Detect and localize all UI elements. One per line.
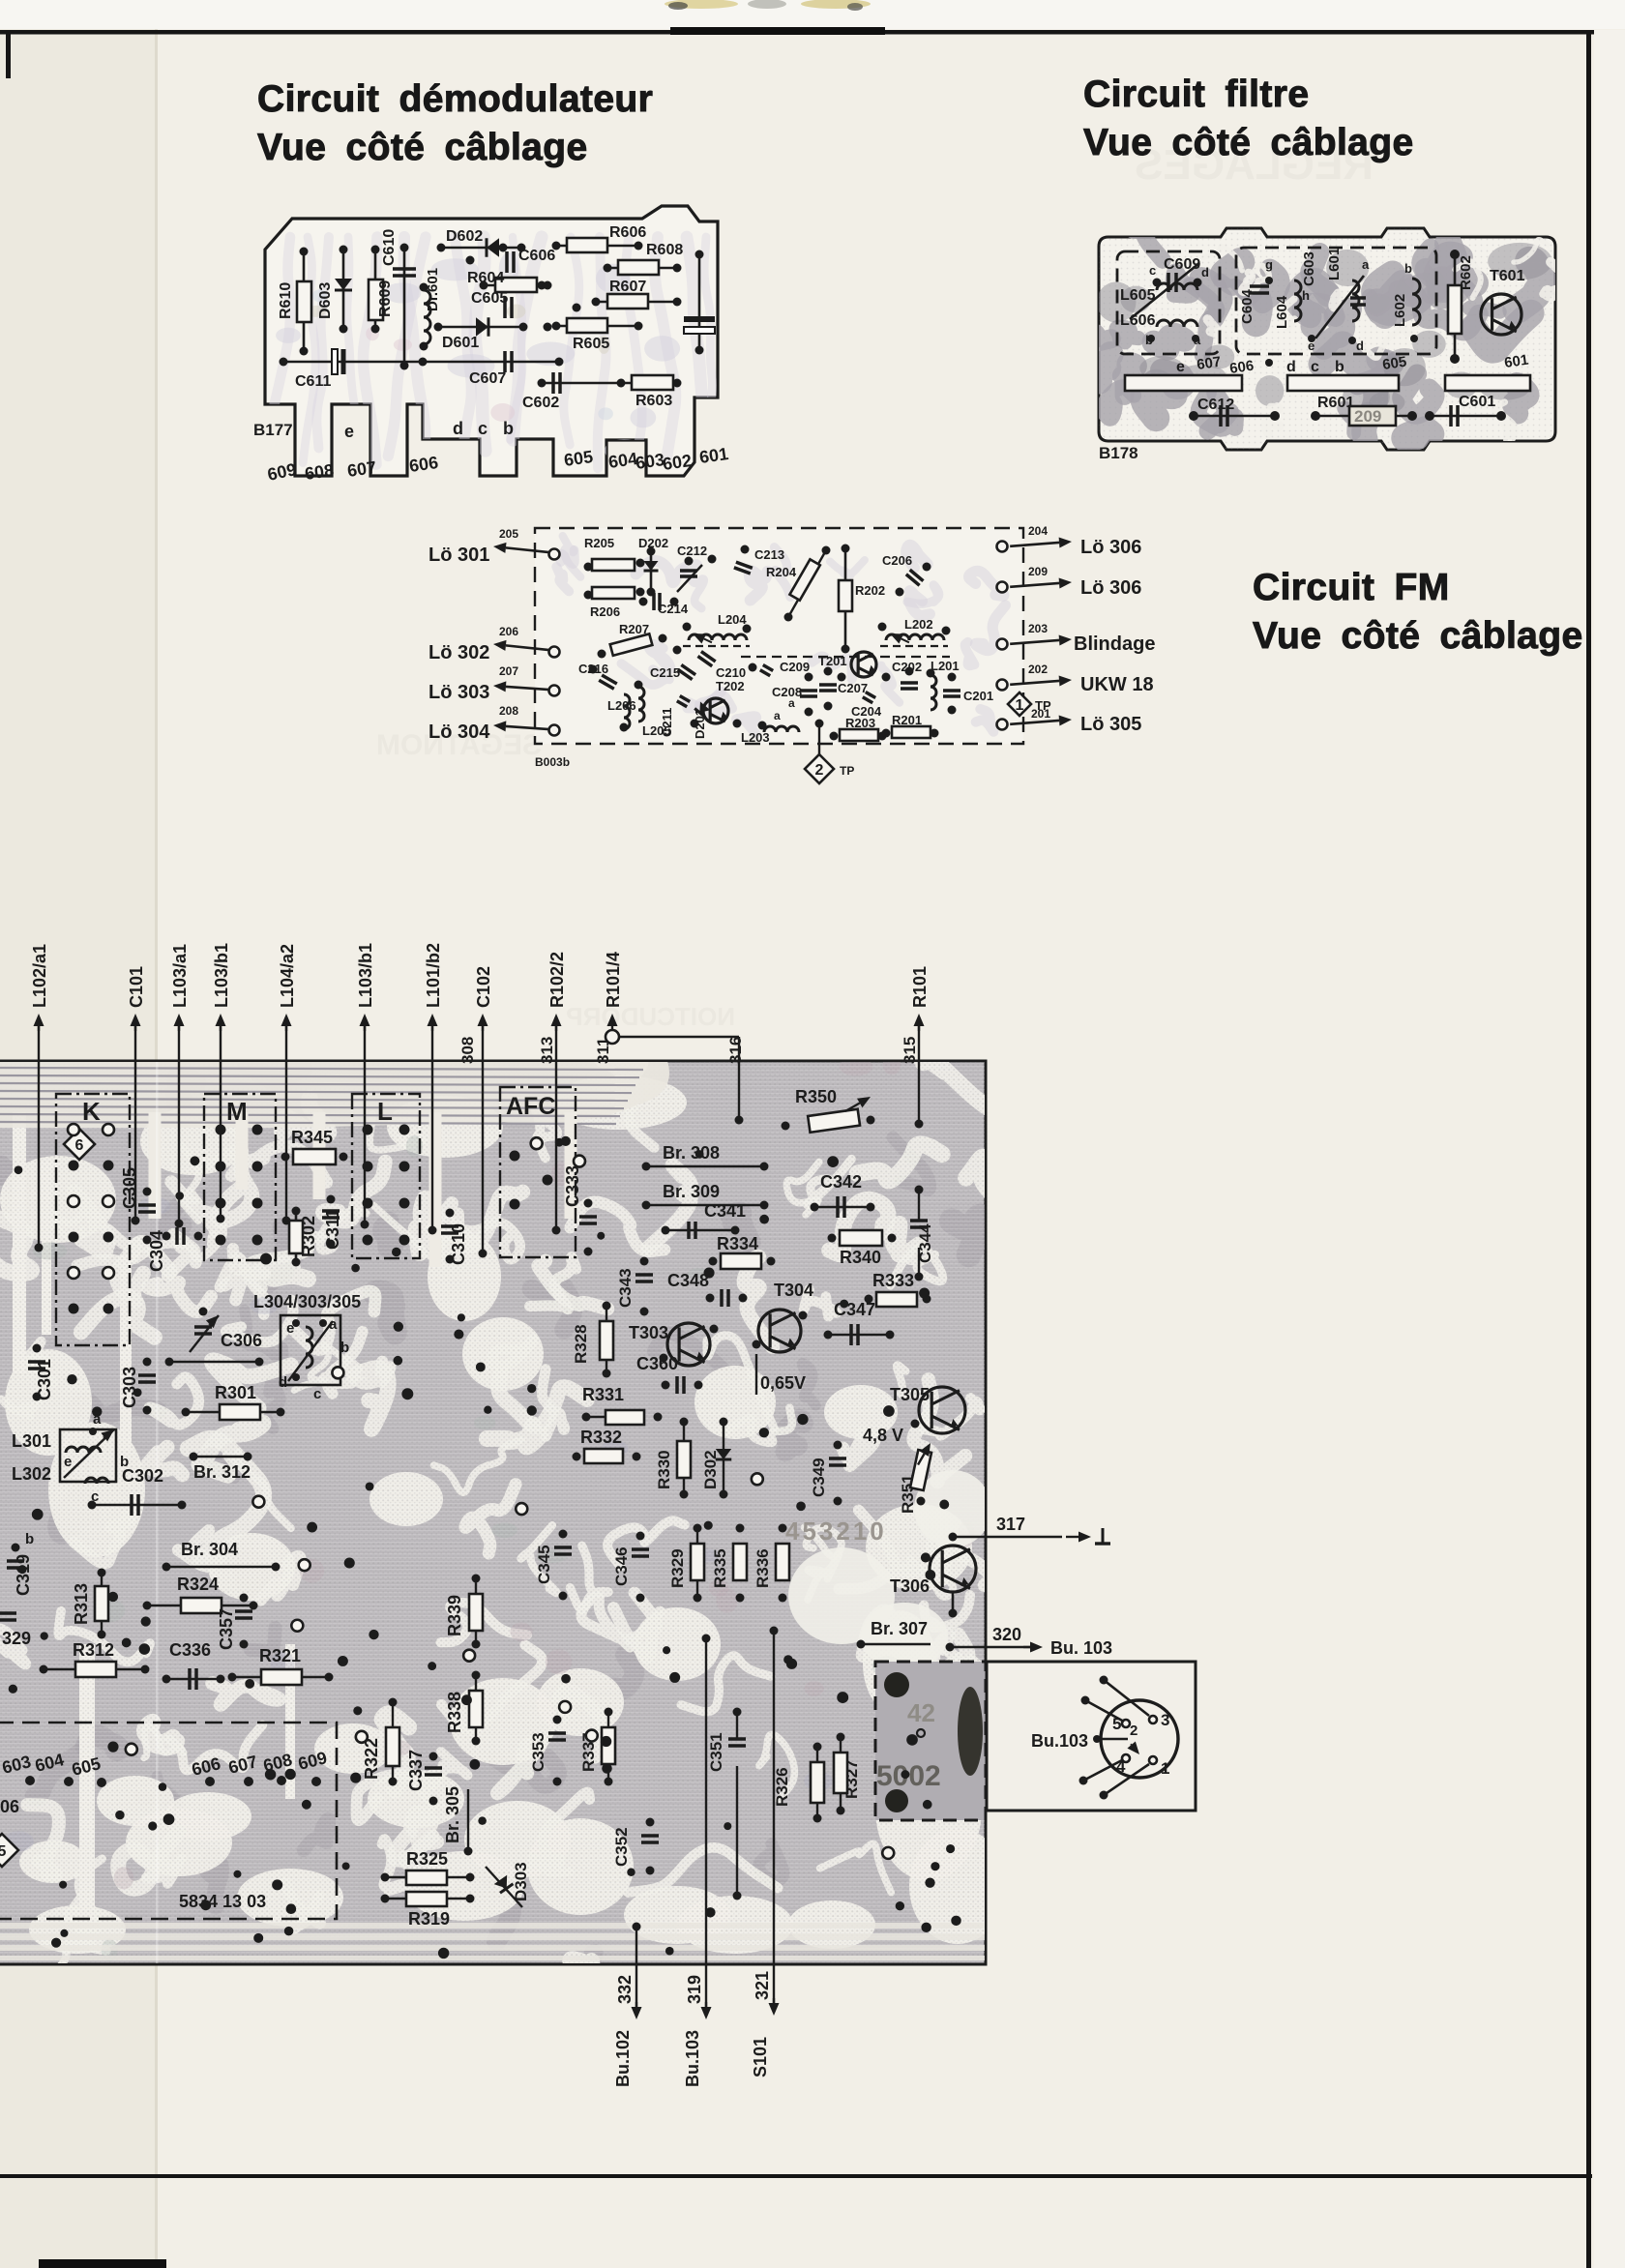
svg-text:Bu.102: Bu.102 xyxy=(613,2030,633,2087)
svg-text:R326: R326 xyxy=(773,1767,791,1807)
svg-text:T304: T304 xyxy=(774,1281,813,1300)
svg-text:C602: C602 xyxy=(522,395,559,411)
svg-text:C349: C349 xyxy=(810,1458,828,1497)
svg-text:C208: C208 xyxy=(772,685,802,699)
svg-text:a: a xyxy=(1362,257,1370,272)
svg-text:C210: C210 xyxy=(716,665,746,680)
svg-text:C101: C101 xyxy=(127,966,146,1008)
svg-text:c: c xyxy=(1149,263,1156,278)
svg-text:d: d xyxy=(279,1374,287,1391)
svg-text:201: 201 xyxy=(1031,707,1050,721)
svg-text:C207: C207 xyxy=(838,681,868,695)
svg-text:AFC: AFC xyxy=(506,1093,555,1120)
svg-text:Dr.601: Dr.601 xyxy=(425,268,441,311)
svg-text:601: 601 xyxy=(1503,352,1529,371)
svg-text:Bu.103: Bu.103 xyxy=(683,2030,702,2087)
svg-text:C606: C606 xyxy=(518,248,555,264)
svg-text:R324: R324 xyxy=(177,1575,219,1594)
svg-text:Bu. 103: Bu. 103 xyxy=(1050,1638,1112,1658)
svg-text:1: 1 xyxy=(1161,1759,1169,1778)
svg-text:R319: R319 xyxy=(408,1909,450,1929)
svg-text:L304/303/305: L304/303/305 xyxy=(253,1292,361,1311)
svg-text:Circuit FM: Circuit FM xyxy=(1253,567,1450,608)
svg-text:607: 607 xyxy=(1196,354,1222,373)
svg-text:C305: C305 xyxy=(120,1167,139,1209)
svg-text:607: 607 xyxy=(346,457,378,481)
svg-text:B178: B178 xyxy=(1099,444,1138,462)
svg-text:D302: D302 xyxy=(701,1450,720,1489)
svg-text:L202: L202 xyxy=(904,617,933,632)
svg-text:320: 320 xyxy=(992,1625,1021,1644)
svg-text:R340: R340 xyxy=(840,1248,881,1267)
svg-text:313: 313 xyxy=(538,1037,556,1064)
svg-text:C353: C353 xyxy=(529,1732,547,1772)
svg-text:B003b: B003b xyxy=(535,755,570,769)
svg-text:L103/a1: L103/a1 xyxy=(170,944,190,1008)
svg-text:e: e xyxy=(344,422,354,441)
svg-text:L103/b1: L103/b1 xyxy=(212,943,231,1008)
svg-text:R205: R205 xyxy=(584,536,614,550)
svg-text:L602: L602 xyxy=(1392,294,1408,327)
svg-text:L302: L302 xyxy=(12,1464,51,1484)
svg-text:K: K xyxy=(82,1097,101,1126)
svg-text:608: 608 xyxy=(304,460,336,484)
svg-text:Vue côté câblage: Vue côté câblage xyxy=(1083,122,1414,163)
svg-text:TP: TP xyxy=(840,764,854,778)
svg-text:332: 332 xyxy=(615,1975,635,2004)
svg-text:L301: L301 xyxy=(12,1431,51,1451)
svg-text:209: 209 xyxy=(1354,407,1381,426)
svg-text:L606: L606 xyxy=(1120,312,1156,329)
svg-text:C212: C212 xyxy=(677,544,707,558)
svg-text:329: 329 xyxy=(2,1629,31,1648)
svg-text:453210: 453210 xyxy=(785,1517,887,1546)
svg-text:a: a xyxy=(329,1316,338,1333)
svg-text:d: d xyxy=(453,419,463,438)
svg-text:R325: R325 xyxy=(406,1849,448,1869)
svg-text:C610: C610 xyxy=(381,229,398,266)
svg-text:R610: R610 xyxy=(278,282,294,319)
svg-text:207: 207 xyxy=(499,664,518,678)
svg-text:a: a xyxy=(774,709,781,722)
svg-text:C611: C611 xyxy=(295,373,331,390)
svg-text:R302: R302 xyxy=(299,1216,318,1257)
svg-text:b: b xyxy=(25,1531,34,1547)
svg-text:R329: R329 xyxy=(668,1548,687,1588)
svg-text:1: 1 xyxy=(1016,697,1024,714)
svg-text:2: 2 xyxy=(1130,1723,1137,1739)
svg-text:C201: C201 xyxy=(963,689,993,703)
svg-text:e: e xyxy=(64,1454,72,1470)
svg-text:R604: R604 xyxy=(467,270,504,286)
svg-text:L203: L203 xyxy=(741,730,770,745)
svg-text:C360: C360 xyxy=(636,1354,678,1373)
svg-text:b: b xyxy=(340,1340,349,1356)
svg-text:C211: C211 xyxy=(660,708,674,737)
svg-text:C607: C607 xyxy=(469,370,506,387)
svg-text:R345: R345 xyxy=(291,1128,333,1147)
svg-text:D602: D602 xyxy=(446,228,483,245)
svg-text:204: 204 xyxy=(1028,524,1048,538)
svg-text:L204: L204 xyxy=(718,612,747,627)
svg-text:R606: R606 xyxy=(609,224,646,241)
svg-text:R335: R335 xyxy=(711,1548,729,1588)
svg-text:C206: C206 xyxy=(882,553,912,568)
svg-text:R608: R608 xyxy=(646,242,683,258)
svg-text:S101: S101 xyxy=(751,2037,770,2077)
svg-text:L103/b1: L103/b1 xyxy=(356,943,375,1008)
svg-text:603: 603 xyxy=(635,450,666,473)
svg-text:0,65V: 0,65V xyxy=(760,1373,806,1393)
svg-text:R338: R338 xyxy=(445,1692,464,1733)
svg-text:L101/b2: L101/b2 xyxy=(424,943,443,1008)
svg-text:Lö 306: Lö 306 xyxy=(1080,577,1141,599)
svg-text:d: d xyxy=(1356,339,1364,353)
svg-text:Lö 301: Lö 301 xyxy=(428,545,489,566)
svg-text:C351: C351 xyxy=(707,1732,725,1772)
svg-text:T202: T202 xyxy=(716,679,745,693)
svg-text:R602: R602 xyxy=(1458,255,1474,290)
svg-text:R332: R332 xyxy=(580,1428,622,1447)
svg-text:Circuit démodulateur: Circuit démodulateur xyxy=(257,78,653,120)
svg-text:Br. 309: Br. 309 xyxy=(663,1182,720,1201)
svg-text:2: 2 xyxy=(815,762,824,779)
svg-text:T303: T303 xyxy=(629,1323,668,1342)
svg-text:R301: R301 xyxy=(215,1383,256,1402)
svg-text:R202: R202 xyxy=(855,583,885,598)
svg-text:L601: L601 xyxy=(1326,248,1343,280)
svg-text:d: d xyxy=(1201,265,1209,280)
svg-text:C345: C345 xyxy=(535,1545,553,1584)
svg-text:605: 605 xyxy=(563,447,595,470)
svg-text:R339: R339 xyxy=(445,1595,464,1636)
svg-text:L104/a2: L104/a2 xyxy=(278,944,297,1008)
svg-text:601: 601 xyxy=(698,444,730,467)
svg-text:315: 315 xyxy=(901,1037,919,1064)
svg-text:C337: C337 xyxy=(406,1750,426,1791)
svg-text:R101: R101 xyxy=(910,966,930,1008)
svg-text:c: c xyxy=(1311,359,1319,375)
svg-text:T306: T306 xyxy=(890,1576,930,1596)
svg-text:b: b xyxy=(1404,261,1412,276)
svg-text:C209: C209 xyxy=(780,660,810,674)
svg-text:c: c xyxy=(313,1386,321,1402)
svg-text:Br. 307: Br. 307 xyxy=(871,1619,928,1638)
svg-text:C215: C215 xyxy=(650,665,680,680)
svg-text:Vue côté câblage: Vue côté câblage xyxy=(257,127,588,168)
svg-text:D601: D601 xyxy=(442,335,479,351)
svg-text:d: d xyxy=(1286,359,1296,375)
svg-text:R350: R350 xyxy=(795,1087,837,1106)
svg-text:R609: R609 xyxy=(377,280,394,317)
svg-text:UKW 18: UKW 18 xyxy=(1080,674,1154,695)
svg-text:D303: D303 xyxy=(512,1862,530,1901)
svg-text:R336: R336 xyxy=(753,1548,772,1588)
svg-text:Lö 305: Lö 305 xyxy=(1080,714,1141,735)
svg-text:M: M xyxy=(226,1097,248,1126)
svg-text:R605: R605 xyxy=(573,336,609,352)
svg-text:3: 3 xyxy=(1161,1711,1169,1729)
svg-text:C213: C213 xyxy=(754,547,784,562)
svg-text:R328: R328 xyxy=(572,1324,590,1364)
svg-text:4,8 V: 4,8 V xyxy=(863,1426,903,1445)
svg-text:317: 317 xyxy=(996,1515,1025,1534)
svg-text:C348: C348 xyxy=(667,1271,709,1290)
svg-text:C302: C302 xyxy=(122,1466,163,1486)
svg-text:Blindage: Blindage xyxy=(1074,633,1155,655)
svg-text:202: 202 xyxy=(1028,663,1048,676)
svg-text:R322: R322 xyxy=(362,1738,381,1780)
svg-text:R321: R321 xyxy=(259,1646,301,1665)
svg-text:R333: R333 xyxy=(872,1271,914,1290)
svg-text:C609: C609 xyxy=(1164,256,1200,273)
svg-text:C612: C612 xyxy=(1197,397,1234,413)
svg-text:R312: R312 xyxy=(73,1640,114,1660)
svg-text:R330: R330 xyxy=(655,1450,673,1489)
svg-text:L201: L201 xyxy=(931,659,960,673)
svg-text:C352: C352 xyxy=(612,1827,631,1867)
svg-text:L206: L206 xyxy=(607,698,636,713)
svg-text:308: 308 xyxy=(458,1037,477,1064)
svg-text:C303: C303 xyxy=(120,1367,139,1408)
svg-text:C346: C346 xyxy=(612,1546,631,1586)
svg-text:602: 602 xyxy=(662,451,694,474)
svg-text:R334: R334 xyxy=(717,1234,758,1253)
svg-text:C336: C336 xyxy=(169,1640,211,1660)
svg-text:208: 208 xyxy=(499,704,518,718)
svg-text:C333: C333 xyxy=(563,1165,582,1207)
svg-text:6: 6 xyxy=(75,1137,84,1154)
svg-text:h: h xyxy=(1302,288,1310,303)
svg-text:Lö 306: Lö 306 xyxy=(1080,537,1141,558)
svg-text:NOITCUDORP: NOITCUDORP xyxy=(566,1002,735,1031)
svg-text:R102/2: R102/2 xyxy=(547,952,567,1008)
svg-text:R206: R206 xyxy=(590,604,620,619)
svg-text:Bu.103: Bu.103 xyxy=(1031,1731,1088,1751)
svg-text:c: c xyxy=(478,419,487,438)
svg-text:T601: T601 xyxy=(1490,268,1525,284)
svg-text:L102/a1: L102/a1 xyxy=(30,944,49,1008)
svg-text:Br. 305: Br. 305 xyxy=(443,1786,462,1843)
svg-text:e: e xyxy=(1176,359,1185,375)
svg-text:Lö 302: Lö 302 xyxy=(428,642,489,663)
svg-text:C343: C343 xyxy=(616,1268,635,1308)
svg-text:321: 321 xyxy=(753,1971,772,2000)
svg-text:Lö 304: Lö 304 xyxy=(428,722,490,743)
svg-text:L605: L605 xyxy=(1120,287,1156,304)
svg-text:R607: R607 xyxy=(609,279,646,295)
svg-text:R313: R313 xyxy=(72,1583,91,1625)
svg-text:C601: C601 xyxy=(1459,394,1495,410)
svg-text:D603: D603 xyxy=(317,282,334,319)
svg-text:g: g xyxy=(1265,257,1273,272)
svg-text:C357: C357 xyxy=(217,1608,236,1650)
svg-text:B177: B177 xyxy=(253,421,293,439)
svg-text:C605: C605 xyxy=(471,290,508,307)
svg-text:606: 606 xyxy=(1228,358,1255,377)
svg-text:b: b xyxy=(503,419,514,438)
svg-text:606: 606 xyxy=(408,453,440,476)
svg-text:Vue côté câblage: Vue côté câblage xyxy=(1253,615,1583,657)
svg-text:206: 206 xyxy=(499,625,518,638)
svg-text:b: b xyxy=(1335,359,1344,375)
svg-text:L: L xyxy=(377,1097,393,1126)
svg-text:C342: C342 xyxy=(820,1172,862,1192)
svg-text:C319: C319 xyxy=(14,1554,33,1596)
svg-text:R603: R603 xyxy=(635,393,672,409)
svg-text:L604: L604 xyxy=(1274,295,1290,329)
svg-text:C306: C306 xyxy=(221,1331,262,1350)
svg-text:42: 42 xyxy=(907,1698,935,1727)
svg-text:06: 06 xyxy=(0,1797,19,1816)
svg-text:209: 209 xyxy=(1028,565,1048,578)
svg-text:Lö 303: Lö 303 xyxy=(428,682,489,703)
svg-text:5834 13 03: 5834 13 03 xyxy=(179,1892,266,1911)
svg-text:R101/4: R101/4 xyxy=(604,952,623,1008)
svg-text:5: 5 xyxy=(0,1843,7,1860)
svg-text:205: 205 xyxy=(499,527,518,541)
svg-text:Circuit filtre: Circuit filtre xyxy=(1083,74,1309,115)
svg-text:C603: C603 xyxy=(1301,251,1317,286)
svg-text:C102: C102 xyxy=(474,966,493,1008)
svg-text:Br. 304: Br. 304 xyxy=(181,1540,238,1559)
svg-text:605: 605 xyxy=(1381,354,1407,373)
svg-text:Br. 308: Br. 308 xyxy=(663,1143,720,1163)
svg-text:203: 203 xyxy=(1028,622,1048,635)
svg-text:Br. 312: Br. 312 xyxy=(193,1462,251,1482)
svg-text:316: 316 xyxy=(726,1037,745,1064)
svg-text:R204: R204 xyxy=(766,565,797,579)
svg-text:R331: R331 xyxy=(582,1385,624,1404)
svg-text:319: 319 xyxy=(685,1975,704,2004)
svg-text:604: 604 xyxy=(607,449,639,472)
svg-text:R601: R601 xyxy=(1317,395,1354,411)
